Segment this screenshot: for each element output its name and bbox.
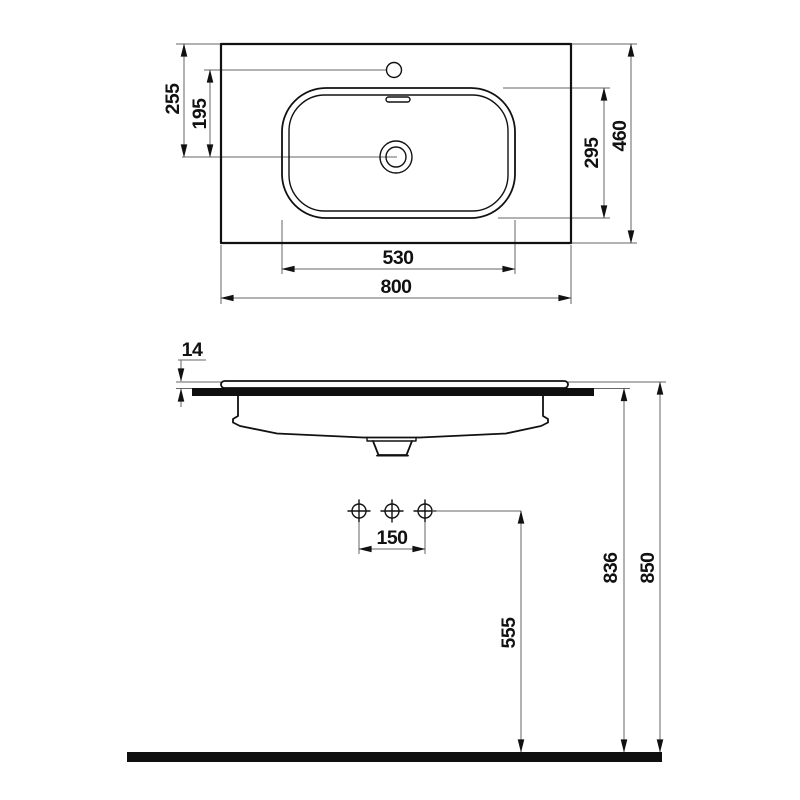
dim-label-295: 295	[581, 137, 603, 169]
dim-basin-width: 530	[282, 220, 515, 274]
floor-line	[127, 752, 662, 762]
dim-label-530: 530	[382, 247, 414, 269]
dim-counter-top-height: 836	[594, 389, 630, 753]
dim-tap-hole-spacing: 150	[359, 523, 425, 554]
dim-label-850: 850	[637, 552, 659, 584]
front-view: 14 850 836	[127, 339, 666, 762]
dim-hole-height: 555	[432, 511, 521, 752]
tap-mounting-holes	[348, 500, 436, 522]
rim-profile	[221, 381, 568, 388]
drain-fitting	[373, 441, 412, 455]
dim-label-836: 836	[600, 552, 622, 584]
tap-hole	[387, 63, 402, 78]
dim-label-14: 14	[182, 339, 203, 361]
mounting-hole	[348, 500, 370, 522]
basin-inner-outline	[289, 95, 508, 211]
top-view-outline	[221, 44, 571, 243]
basin-outer-outline	[282, 88, 515, 218]
dim-label-255: 255	[162, 83, 184, 115]
bowl-profile	[233, 396, 548, 438]
dim-label-555: 555	[498, 617, 520, 649]
dim-rim-above-counter: 14	[176, 339, 221, 407]
mounting-hole	[381, 500, 403, 522]
dim-label-150: 150	[376, 527, 408, 549]
dim-label-800: 800	[380, 276, 412, 298]
counter-board	[192, 388, 594, 396]
dim-label-460: 460	[609, 120, 631, 152]
top-view: 255 195 295 460 530	[162, 44, 637, 304]
dim-label-195: 195	[189, 98, 211, 130]
overflow-slot	[386, 97, 410, 102]
washbasin-dimension-drawing: 255 195 295 460 530	[0, 0, 800, 800]
technical-drawing: 255 195 295 460 530	[0, 0, 800, 800]
